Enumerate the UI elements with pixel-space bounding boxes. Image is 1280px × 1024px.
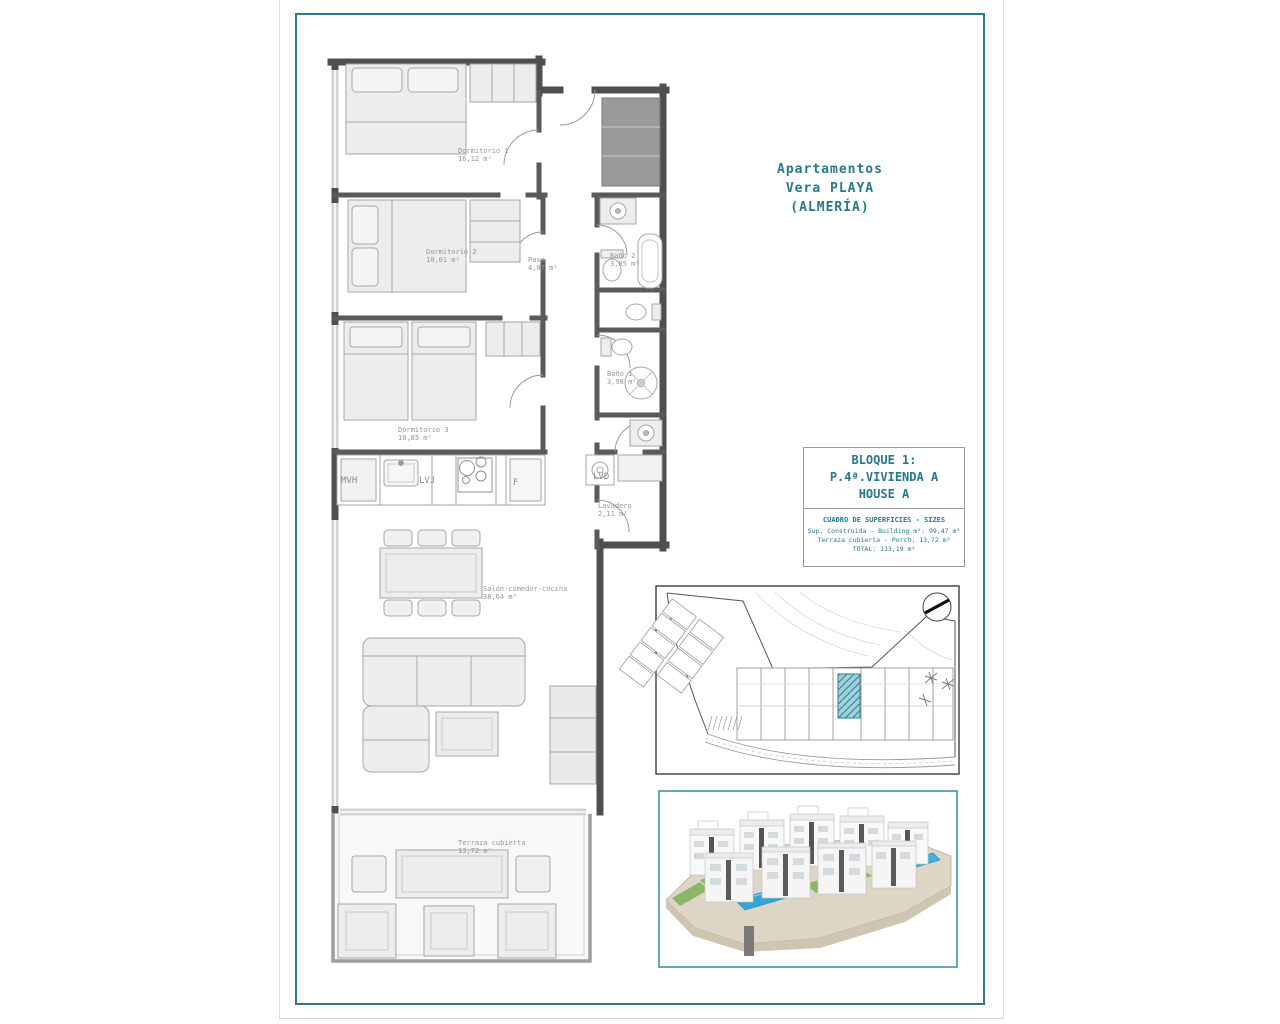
entry-wardrobe	[602, 98, 660, 186]
appliance-label-lvd: LVD	[593, 472, 609, 482]
north-arrow	[923, 593, 951, 621]
room-label-bano-1: Baño 1 3,98 m²	[607, 370, 637, 386]
project-title-line2: Vera PLAYA	[738, 179, 922, 198]
sizes-row-total: TOTAL: 113,19 m²	[806, 545, 962, 554]
room-name: Salón-comedor-cocina	[483, 585, 567, 593]
sizes-table: CUADRO DE SUPERFICIES - SIZES Sup. Const…	[804, 509, 964, 566]
unit-info-header: BLOQUE 1: P.4ª.VIVIENDA A HOUSE A	[804, 448, 964, 509]
retaining-wall	[744, 926, 754, 956]
sizes-row-porch: Terraza cubierta - Porch: 13,72 m²	[806, 536, 962, 545]
room-area: 13,72 m²	[458, 847, 525, 855]
room-area: 2,11 m²	[598, 510, 632, 518]
room-area: 10,85 m²	[398, 434, 449, 442]
appliance-label-mvh: MVH	[341, 476, 357, 486]
room-label-paso: Paso 4,07 m²	[528, 256, 558, 272]
room-label-dormitorio-1: Dormitorio 1 16,12 m²	[458, 147, 509, 163]
sizes-row-built: Sup. Construida - Building m²: 99,47 m²	[806, 527, 962, 536]
appliance-label-lvj: LVJ	[419, 476, 435, 486]
project-title-line3: (ALMERÍA)	[738, 198, 922, 217]
hall-washbasin	[630, 420, 662, 446]
room-label-terraza: Terraza cubierta 13,72 m²	[458, 839, 525, 855]
house-label: HOUSE A	[804, 486, 964, 503]
unit-label: P.4ª.VIVIENDA A	[804, 469, 964, 486]
room-name: Dormitorio 3	[398, 426, 449, 434]
highlighted-unit	[838, 674, 860, 718]
site-plan-inset	[619, 586, 959, 774]
room-name: Lavadero	[598, 502, 632, 510]
room-label-dormitorio-2: Dormitorio 2 10,01 m²	[426, 248, 477, 264]
render-3d-inset	[659, 791, 957, 967]
drawing-sheet: Apartamentos Vera PLAYA (ALMERÍA) BLOQUE…	[279, 0, 1004, 1019]
room-area: 38,64 m²	[483, 593, 567, 601]
room-name: Baño 2	[610, 252, 640, 260]
room-label-salon: Salón-comedor-cocina 38,64 m²	[483, 585, 567, 601]
project-title-line1: Apartamentos	[738, 160, 922, 179]
wc-fixtures	[626, 304, 661, 320]
appliance-label-f: F	[513, 478, 518, 488]
room-name: Baño 1	[607, 370, 637, 378]
room-name: Paso	[528, 256, 558, 264]
room-label-bano-2: Baño 2 3,85 m²	[610, 252, 640, 268]
room-name: Terraza cubierta	[458, 839, 525, 847]
project-title: Apartamentos Vera PLAYA (ALMERÍA)	[738, 160, 922, 217]
room-label-dormitorio-3: Dormitorio 3 10,85 m²	[398, 426, 449, 442]
room-area: 10,01 m²	[426, 256, 477, 264]
room-label-lavadero: Lavadero 2,11 m²	[598, 502, 632, 518]
sizes-table-title: CUADRO DE SUPERFICIES - SIZES	[806, 516, 962, 525]
room-name: Dormitorio 1	[458, 147, 509, 155]
unit-info-box: BLOQUE 1: P.4ª.VIVIENDA A HOUSE A CUADRO…	[803, 447, 965, 567]
room-name: Dormitorio 2	[426, 248, 477, 256]
block-label: BLOQUE 1:	[804, 452, 964, 469]
room-area: 4,07 m²	[528, 264, 558, 272]
dining-set	[380, 530, 482, 616]
room-area: 3,85 m²	[610, 260, 640, 268]
room-area: 3,98 m²	[607, 378, 637, 386]
room-area: 16,12 m²	[458, 155, 509, 163]
